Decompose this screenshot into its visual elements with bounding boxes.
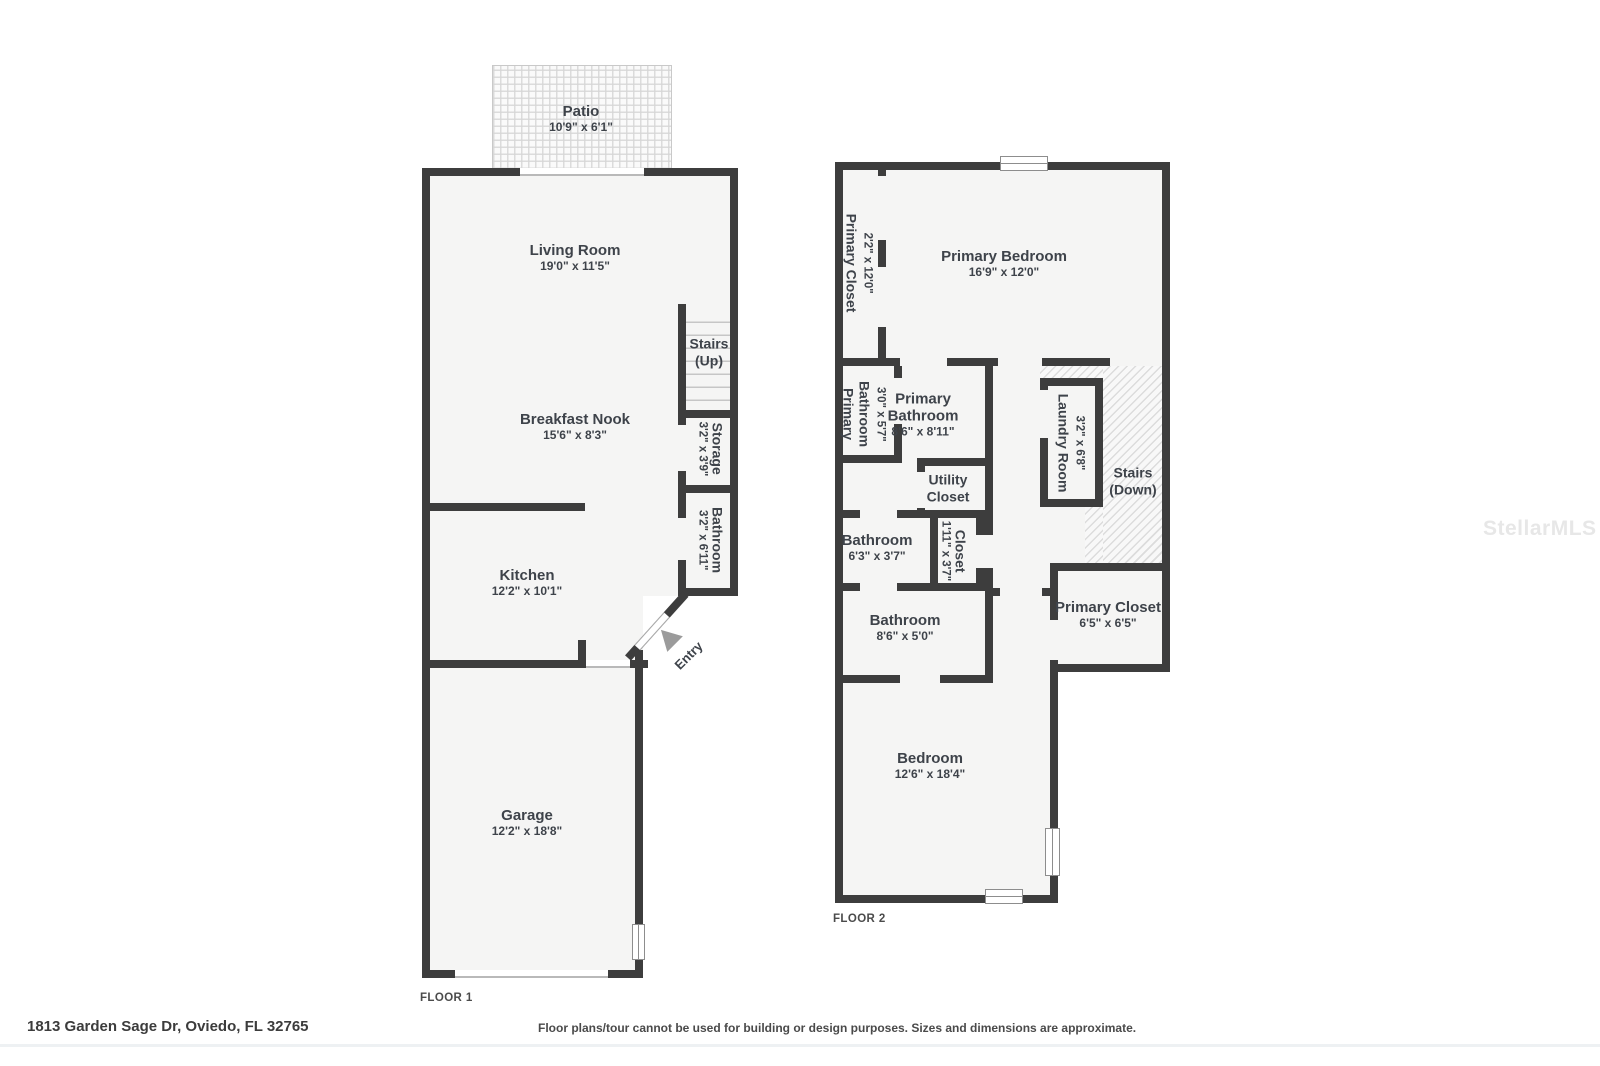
room-name: Bathroom bbox=[842, 532, 913, 549]
wall bbox=[835, 358, 900, 366]
stellar-mls-watermark: StellarMLS bbox=[1483, 517, 1597, 541]
wall bbox=[1095, 378, 1103, 507]
wall bbox=[1042, 358, 1110, 366]
wall bbox=[917, 458, 993, 466]
room-dims: 3'0" x 5'7" bbox=[873, 381, 888, 447]
door-opening bbox=[586, 660, 630, 668]
wall bbox=[578, 640, 586, 668]
room-dims: 2'2" x 12'0" bbox=[860, 214, 875, 313]
room-name: Bathroom bbox=[888, 408, 959, 425]
room-kitchen: Kitchen 12'2" x 10'1" bbox=[492, 567, 562, 599]
room-closet: Closet 1'11" x 3'7" bbox=[938, 521, 969, 582]
wall bbox=[430, 503, 585, 511]
room-bathroom-f1: Bathroom 3'2" x 6'11" bbox=[695, 507, 726, 573]
wall bbox=[1162, 162, 1170, 672]
room-patio: Patio 10'9" x 6'1" bbox=[549, 103, 613, 135]
room-name: Bathroom bbox=[870, 612, 941, 629]
floor1-tag: FLOOR 1 bbox=[420, 992, 473, 1004]
stairs-up-label: Stairs (Up) bbox=[690, 336, 729, 369]
floor2-tag: FLOOR 2 bbox=[833, 913, 886, 925]
window bbox=[1045, 828, 1060, 876]
room-name: Bedroom bbox=[895, 750, 965, 767]
room-name: Closet bbox=[953, 521, 969, 582]
room-bathroom-lower: Bathroom 8'6" x 5'0" bbox=[870, 612, 941, 644]
stairs-line1: Stairs bbox=[1109, 465, 1156, 482]
room-name: Bathroom bbox=[710, 507, 726, 573]
door-opening bbox=[976, 535, 993, 568]
room-living-room: Living Room 19'0" x 11'5" bbox=[530, 242, 621, 274]
room-dims: 12'2" x 10'1" bbox=[492, 584, 562, 599]
floor1-footprint-lower bbox=[422, 596, 643, 978]
room-storage: Storage 3'2" x 3'9" bbox=[695, 422, 726, 477]
wall bbox=[730, 168, 738, 596]
wall bbox=[1050, 664, 1170, 672]
wall bbox=[678, 485, 738, 493]
wall bbox=[1040, 499, 1103, 507]
room-primary-bedroom: Primary Bedroom 16'9" x 12'0" bbox=[941, 248, 1067, 280]
room-garage: Garage 12'2" x 18'8" bbox=[492, 807, 562, 839]
door-opening bbox=[1000, 588, 1042, 596]
room-name: Closet bbox=[927, 488, 970, 505]
wall bbox=[430, 660, 582, 668]
wall bbox=[835, 510, 993, 518]
bottom-edge-strip bbox=[0, 1044, 1600, 1047]
room-name: Primary Closet bbox=[1055, 599, 1161, 616]
stairs-line2: (Down) bbox=[1109, 481, 1156, 498]
room-dims: 8'6" x 5'0" bbox=[870, 629, 941, 644]
door-opening bbox=[678, 518, 686, 560]
wall bbox=[422, 168, 430, 978]
room-dims: 3'2" x 3'9" bbox=[695, 422, 710, 477]
floor2-footprint-lower bbox=[835, 672, 1058, 903]
wall bbox=[1050, 563, 1170, 571]
wall bbox=[678, 304, 686, 410]
room-dims: 12'6" x 18'4" bbox=[895, 767, 965, 782]
garage-door bbox=[455, 970, 608, 978]
room-dims: 16'9" x 12'0" bbox=[941, 265, 1067, 280]
window bbox=[632, 924, 645, 960]
patio-sliding-door bbox=[520, 168, 644, 176]
wall bbox=[985, 358, 993, 518]
entry-label: Entry bbox=[672, 638, 706, 672]
stairs-down-hatch bbox=[1085, 507, 1103, 563]
door-opening bbox=[917, 472, 925, 508]
room-primary-closet: Primary Closet 6'5" x 6'5" bbox=[1055, 599, 1161, 631]
room-dims: 3'2" x 6'11" bbox=[695, 507, 710, 573]
wall bbox=[1040, 378, 1103, 386]
room-name: Patio bbox=[549, 103, 613, 120]
room-name: Laundry Room bbox=[1056, 394, 1072, 493]
room-name: Storage bbox=[710, 422, 726, 477]
wall bbox=[835, 583, 993, 591]
door-opening bbox=[878, 267, 886, 327]
floorplan-canvas: Patio 10'9" x 6'1" Living Room 19'0" x 1… bbox=[0, 0, 1600, 1066]
door-opening bbox=[878, 176, 886, 240]
room-dims: 19'0" x 11'5" bbox=[530, 259, 621, 274]
door-opening bbox=[900, 675, 940, 683]
room-name: Primary bbox=[841, 381, 857, 447]
window bbox=[1000, 156, 1048, 171]
room-bathroom-upper: Bathroom 6'3" x 3'7" bbox=[842, 532, 913, 564]
room-dims: 8'6" x 8'11" bbox=[888, 425, 959, 440]
door-opening bbox=[860, 583, 897, 591]
room-primary-bathroom: Primary Bathroom 8'6" x 8'11" bbox=[888, 391, 959, 440]
room-name: Utility bbox=[927, 472, 970, 489]
door-opening bbox=[678, 425, 686, 471]
room-name: Primary Closet bbox=[844, 214, 860, 313]
stairs-down-label: Stairs (Down) bbox=[1109, 465, 1156, 498]
stairs-down-hatch bbox=[1040, 366, 1103, 378]
room-name: Primary bbox=[888, 391, 959, 408]
wall bbox=[678, 410, 738, 418]
room-dims: 6'3" x 3'7" bbox=[842, 549, 913, 564]
disclaimer-text: Floor plans/tour cannot be used for buil… bbox=[538, 1021, 1136, 1035]
wall bbox=[835, 455, 902, 463]
room-bedroom: Bedroom 12'6" x 18'4" bbox=[895, 750, 965, 782]
room-name: Living Room bbox=[530, 242, 621, 259]
room-dims: 6'5" x 6'5" bbox=[1055, 616, 1161, 631]
wall bbox=[630, 660, 648, 668]
window bbox=[985, 889, 1023, 904]
room-name: Garage bbox=[492, 807, 562, 824]
stairs-line1: Stairs bbox=[690, 336, 729, 353]
room-name: Breakfast Nook bbox=[520, 411, 630, 428]
room-dims: 15'6" x 8'3" bbox=[520, 428, 630, 443]
room-dims: 3'2" x 6'8" bbox=[1072, 394, 1087, 493]
wall bbox=[985, 591, 993, 683]
room-breakfast-nook: Breakfast Nook 15'6" x 8'3" bbox=[520, 411, 630, 443]
wall bbox=[835, 895, 1058, 903]
room-primary-closet-left: Primary Closet 2'2" x 12'0" bbox=[844, 214, 875, 313]
door-opening bbox=[860, 510, 897, 518]
room-name: Bathroom bbox=[857, 381, 873, 447]
room-primary-bathroom-small: Primary Bathroom 3'0" x 5'7" bbox=[841, 381, 888, 447]
room-name: Primary Bedroom bbox=[941, 248, 1067, 265]
room-utility-closet: Utility Closet bbox=[927, 472, 970, 505]
room-laundry: Laundry Room 3'2" x 6'8" bbox=[1056, 394, 1087, 493]
room-dims: 1'11" x 3'7" bbox=[938, 521, 953, 582]
property-address: 1813 Garden Sage Dr, Oviedo, FL 32765 bbox=[27, 1018, 309, 1035]
room-dims: 12'2" x 18'8" bbox=[492, 824, 562, 839]
stairs-line2: (Up) bbox=[690, 352, 729, 369]
door-opening bbox=[1040, 390, 1048, 438]
room-dims: 10'9" x 6'1" bbox=[549, 120, 613, 135]
room-name: Kitchen bbox=[492, 567, 562, 584]
